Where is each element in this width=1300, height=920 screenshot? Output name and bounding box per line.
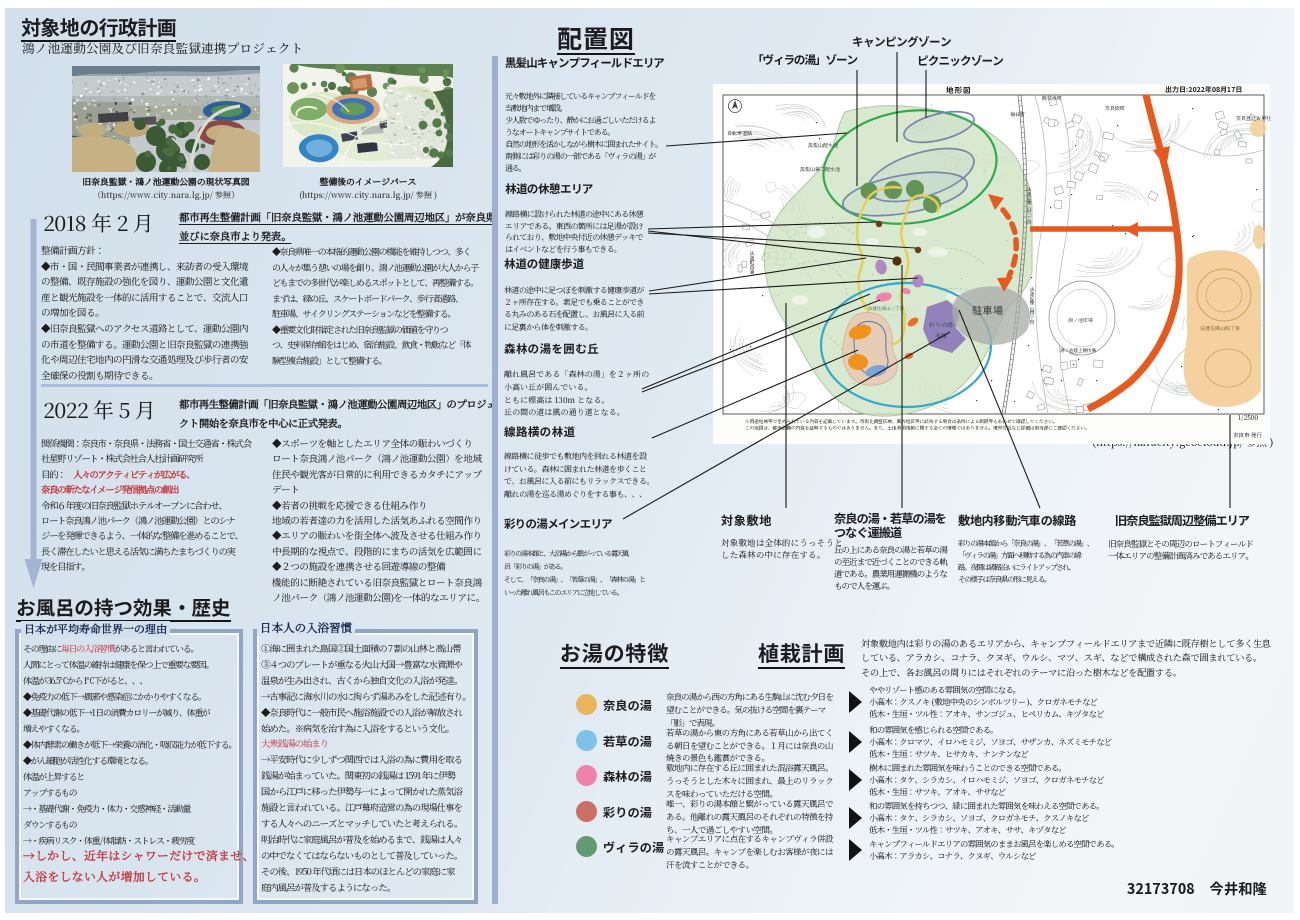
svg-text:法蓮佐保山二丁目: 法蓮佐保山二丁目 (868, 306, 904, 312)
svg-text:法蓮佐保山三丁目: 法蓮佐保山三丁目 (1026, 186, 1033, 224)
svg-text:地形図: 地形図 (946, 85, 972, 96)
svg-text:鴻ノ池陸上競技場: 鴻ノ池陸上競技場 (1059, 347, 1096, 354)
svg-text:黒髪山第二配水池: 黒髪山第二配水池 (800, 166, 841, 173)
svg-text:彩りの湯: 彩りの湯 (928, 320, 953, 329)
svg-text:法蓮佐保山四丁目: 法蓮佐保山四丁目 (1200, 325, 1240, 332)
svg-text:鴻ノ池球場: 鴻ノ池球場 (1068, 317, 1093, 324)
svg-text:奈良市 発行: 奈良市 発行 (1233, 431, 1262, 439)
svg-text:般若寺町: 般若寺町 (1041, 95, 1062, 102)
svg-text:駐車場: 駐車場 (972, 302, 1004, 317)
svg-text:1/2500: 1/2500 (1238, 413, 1258, 422)
svg-text:奈良阪町: 奈良阪町 (1105, 105, 1125, 112)
svg-text:法蓮佐保山四丁目: 法蓮佐保山四丁目 (1029, 286, 1036, 324)
svg-text:梅谷町: 梅谷町 (1010, 111, 1025, 118)
svg-text:法蓮町西通: 法蓮町西通 (749, 250, 756, 274)
svg-text:※用途地域等で定められている内容を記載しています。市街化調整: ※用途地域等で定められている内容を記載しています。市街化調整区域、風致地区等に該… (745, 418, 1057, 425)
svg-text:黒髪山配水池: 黒髪山配水池 (808, 142, 839, 149)
svg-text:出力日:2022年08月17日: 出力日:2022年08月17日 (1165, 85, 1242, 95)
svg-text:本館: 本館 (934, 331, 947, 340)
svg-text:奈良豆比古神社: 奈良豆比古神社 (1236, 115, 1272, 122)
svg-text:自転車道路: 自転車道路 (727, 130, 753, 137)
svg-text:この地図は、都市計画の内容を証明するものではありません。また: この地図は、都市計画の内容を証明するものではありません。また、土地利用規制に関す… (745, 425, 1090, 432)
